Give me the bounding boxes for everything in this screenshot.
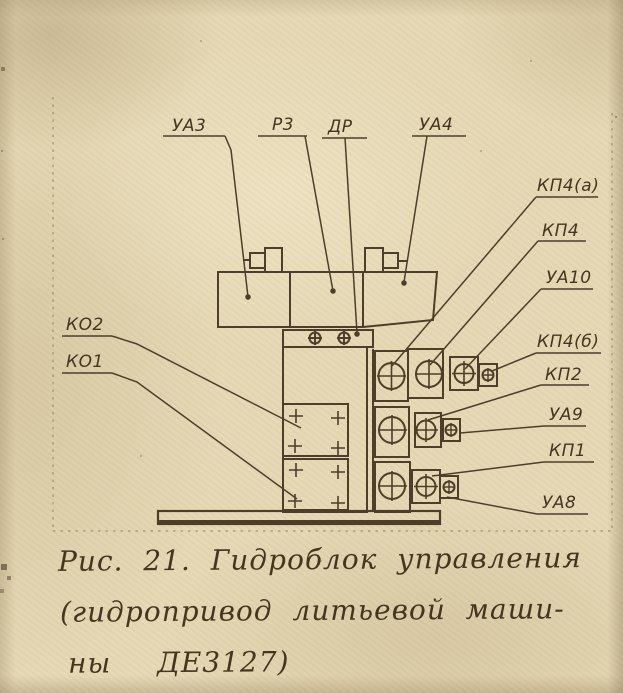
leader-dr-dot [355, 332, 359, 336]
callout-ko2: КО2 [66, 315, 104, 335]
leader-ko1 [62, 373, 297, 499]
hydraulic-block-figure: УА3 Р3 ДР УА4 КП4(а) КП4 УА10 КП4(б) КП2… [0, 0, 623, 693]
check-valve-blocks [283, 404, 348, 510]
central-column [283, 347, 373, 512]
scanned-page: УА3 Р3 ДР УА4 КП4(а) КП4 УА10 КП4(б) КП2… [0, 0, 623, 693]
callout-dr: ДР [327, 117, 353, 137]
callout-ua8: УА8 [542, 493, 576, 513]
callout-ua10: УА10 [546, 268, 592, 288]
throttle-plate [283, 330, 373, 347]
callout-r3: Р3 [272, 115, 294, 135]
callout-kp4b: КП4(б) [537, 332, 599, 352]
caption-line-2: (гидропривод литьевой маши- [60, 592, 565, 629]
leader-ua10 [465, 289, 593, 369]
callout-kp4a: КП4(а) [537, 176, 599, 196]
hydraulic-block-drawing [158, 248, 497, 524]
callout-kp4: КП4 [542, 221, 579, 241]
top-fitting-right [365, 248, 408, 272]
valve-row-3 [375, 462, 458, 512]
leader-dr [322, 138, 367, 333]
callout-ua3: УА3 [172, 116, 206, 136]
valve-row-1 [375, 349, 497, 401]
leader-r3 [258, 136, 333, 291]
callout-ua4: УА4 [419, 115, 453, 135]
leader-ua4 [404, 136, 466, 282]
callout-ko1: КО1 [66, 352, 104, 372]
leader-ua9 [460, 426, 586, 433]
leader-r3-dot [331, 289, 335, 293]
leader-kp1 [432, 462, 594, 476]
page-frame-dashed [53, 97, 612, 531]
caption-line-1: Рис. 21. Гидроблок управления [58, 541, 582, 578]
callout-kp2: КП2 [545, 365, 582, 385]
leader-ua4-dot [402, 281, 406, 285]
callout-ua9: УА9 [549, 405, 583, 425]
callout-kp1: КП1 [549, 441, 586, 461]
callout-leaders [62, 136, 601, 514]
scan-speckles [0, 0, 2, 2]
callout-labels: УА3 Р3 ДР УА4 КП4(а) КП4 УА10 КП4(б) КП2… [66, 115, 599, 513]
top-fitting-left [243, 248, 282, 272]
leader-ua3-dot [246, 295, 250, 299]
caption-line-3: ны ДЕ3127) [68, 645, 290, 680]
